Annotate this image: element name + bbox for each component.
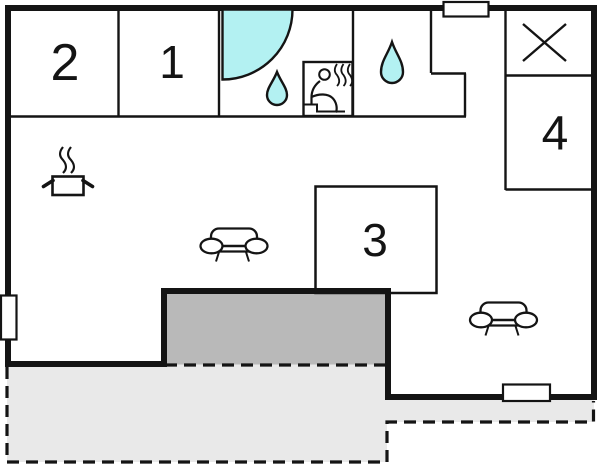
interior-walls	[8, 8, 594, 190]
veranda-area	[164, 289, 389, 365]
sofa-legs	[216, 252, 249, 262]
kitchen-icons	[44, 147, 93, 195]
sauna-icon	[304, 62, 353, 116]
water-drop-icon-2	[381, 42, 403, 83]
window-icon-bottom	[503, 385, 550, 402]
window-icon-left	[1, 296, 17, 340]
cooking-pot-icon	[53, 177, 84, 196]
sofa-arm-right	[246, 239, 268, 254]
floor-plan-svg: 2 1 3 4	[0, 0, 600, 466]
room-3-label: 3	[362, 214, 388, 266]
sofa-arm-left	[201, 239, 223, 254]
window-icon-top	[444, 2, 489, 17]
room-1-label: 1	[159, 36, 185, 88]
terrace-area	[7, 364, 594, 463]
floor-plan: 2 1 3 4	[0, 0, 600, 466]
sofa-legs	[486, 326, 519, 336]
sofa-arm-right	[515, 313, 537, 328]
sofa-icon-1	[201, 229, 268, 262]
steam-icon	[60, 147, 74, 173]
water-drop-icon	[267, 72, 287, 105]
shower-icon	[223, 10, 293, 80]
room-4-label: 4	[542, 108, 569, 161]
room-2-label: 2	[51, 34, 80, 92]
cross-icon	[523, 24, 566, 61]
sofa-icon-2	[470, 303, 537, 336]
sofa-arm-left	[470, 313, 492, 328]
